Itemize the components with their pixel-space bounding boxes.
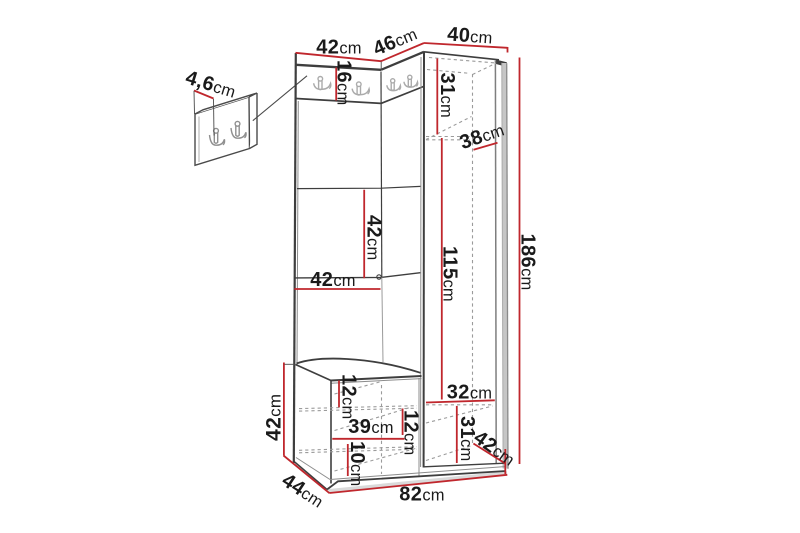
svg-text:12cm: 12cm <box>400 410 422 455</box>
svg-text:42cm: 42cm <box>363 215 385 260</box>
svg-text:82cm: 82cm <box>399 484 444 506</box>
svg-text:42cm: 42cm <box>263 394 286 441</box>
svg-text:115cm: 115cm <box>439 246 461 302</box>
svg-text:39cm: 39cm <box>348 416 393 438</box>
svg-text:32cm: 32cm <box>447 382 492 404</box>
svg-text:12cm: 12cm <box>338 374 360 419</box>
svg-text:31cm: 31cm <box>436 73 458 118</box>
svg-text:186cm: 186cm <box>517 234 539 291</box>
svg-text:16cm: 16cm <box>333 60 355 105</box>
svg-text:10cm: 10cm <box>346 441 368 486</box>
svg-text:42cm: 42cm <box>310 269 355 291</box>
svg-text:42cm: 42cm <box>316 37 361 59</box>
